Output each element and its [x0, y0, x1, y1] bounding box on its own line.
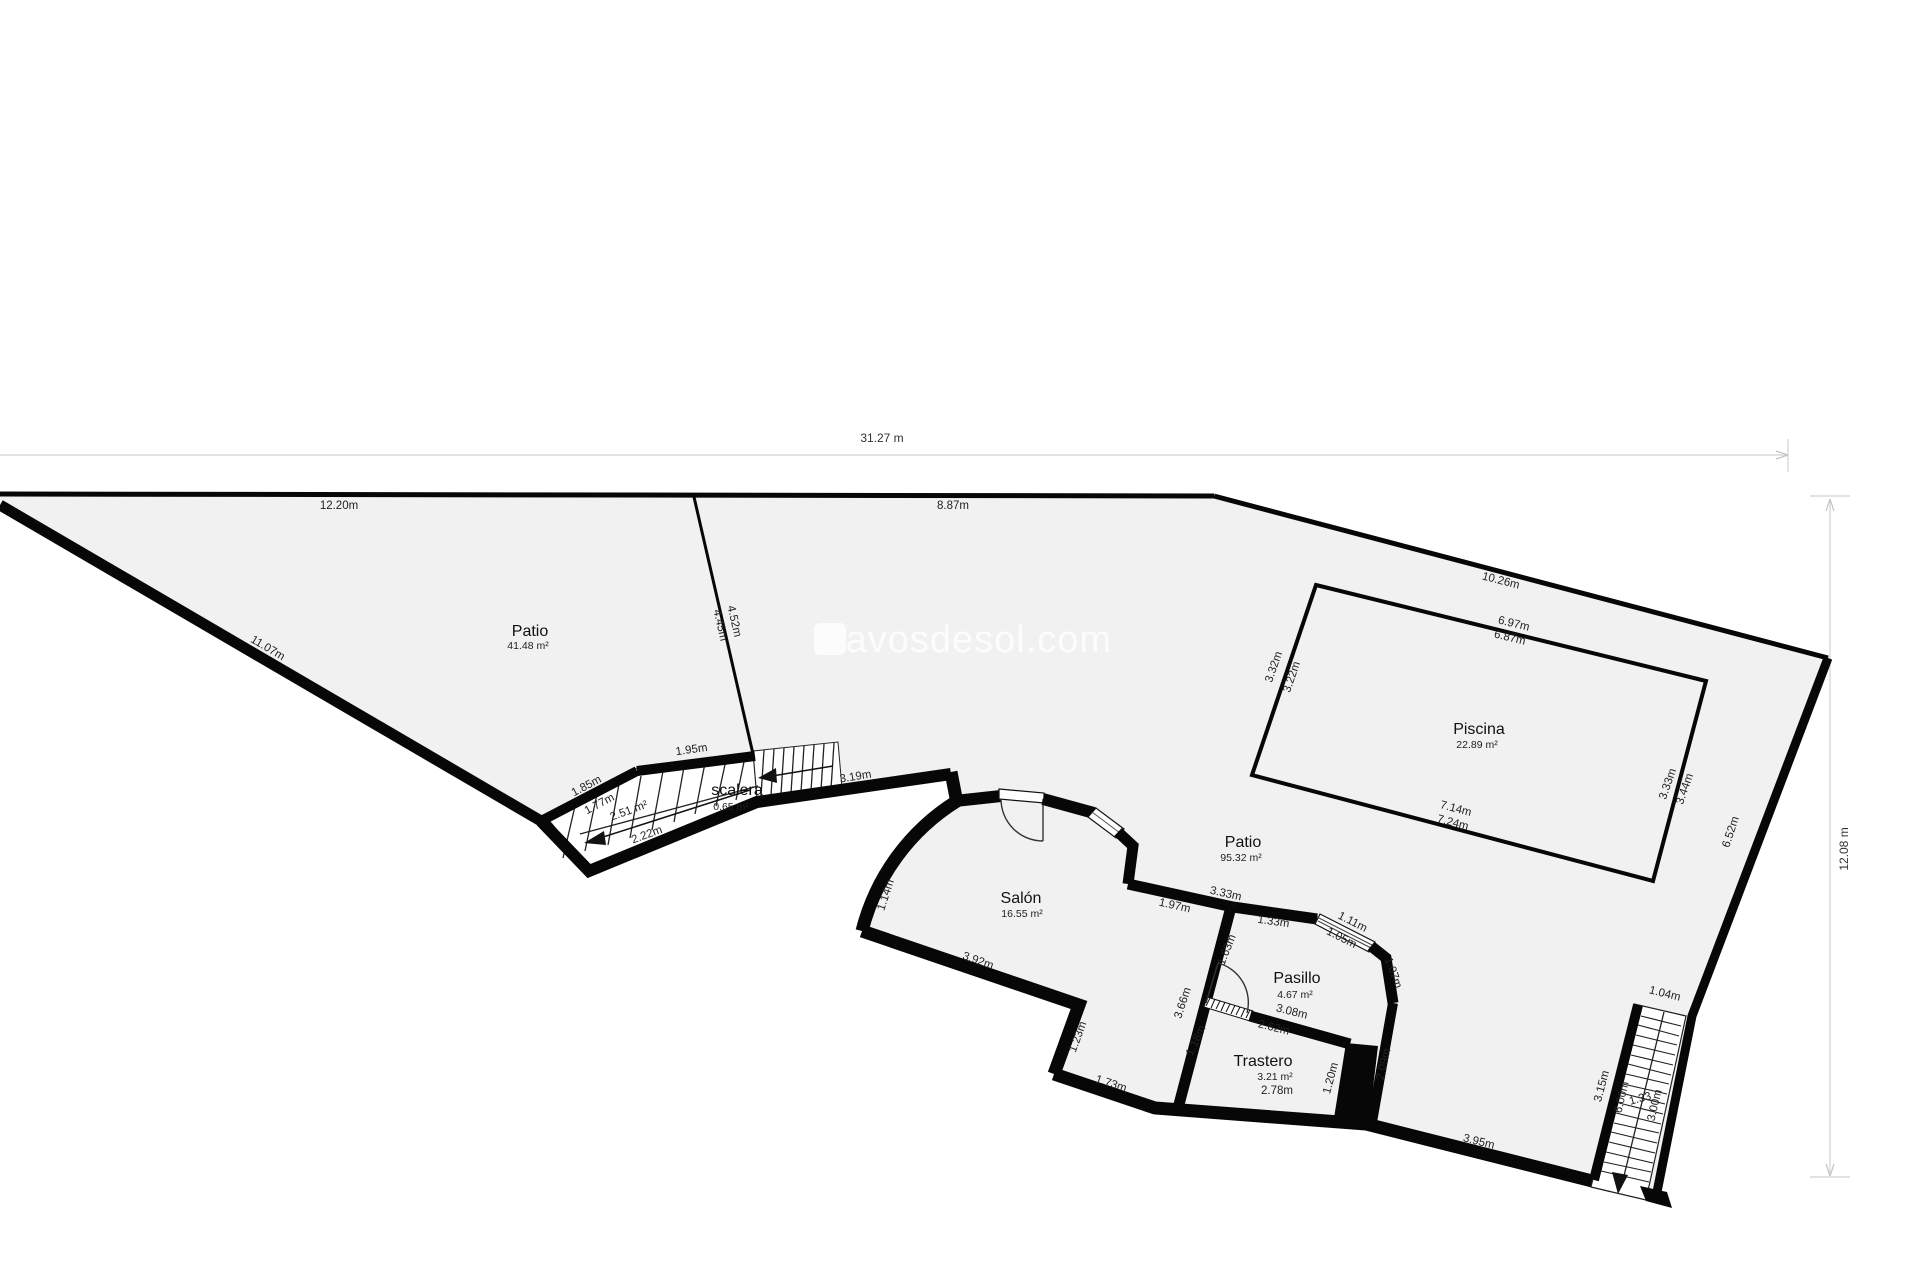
svg-text:Piscina: Piscina: [1453, 721, 1505, 738]
svg-text:Pasillo: Pasillo: [1273, 970, 1320, 987]
svg-text:Patio: Patio: [512, 623, 549, 640]
svg-text:Salón: Salón: [1001, 890, 1042, 907]
svg-text:2.78m: 2.78m: [1261, 1085, 1293, 1097]
svg-text:4.67 m²: 4.67 m²: [1277, 989, 1313, 1001]
svg-text:31.27 m: 31.27 m: [860, 431, 903, 445]
svg-text:12.08 m: 12.08 m: [1837, 827, 1851, 870]
svg-text:16.55 m²: 16.55 m²: [1001, 908, 1043, 920]
svg-text:41.48 m²: 41.48 m²: [507, 640, 549, 652]
svg-text:95.32 m²: 95.32 m²: [1220, 852, 1262, 864]
svg-text:Patio: Patio: [1225, 834, 1262, 851]
svg-text:3.21 m²: 3.21 m²: [1257, 1071, 1293, 1083]
svg-text:scalera: scalera: [711, 782, 763, 799]
svg-text:ravosdesol.com: ravosdesol.com: [832, 619, 1112, 661]
svg-text:22.89 m²: 22.89 m²: [1456, 739, 1498, 751]
svg-text:0.65 m²: 0.65 m²: [713, 801, 749, 813]
svg-text:12.20m: 12.20m: [320, 500, 358, 512]
svg-text:8.87m: 8.87m: [937, 500, 969, 512]
svg-text:Trastero: Trastero: [1234, 1053, 1293, 1070]
